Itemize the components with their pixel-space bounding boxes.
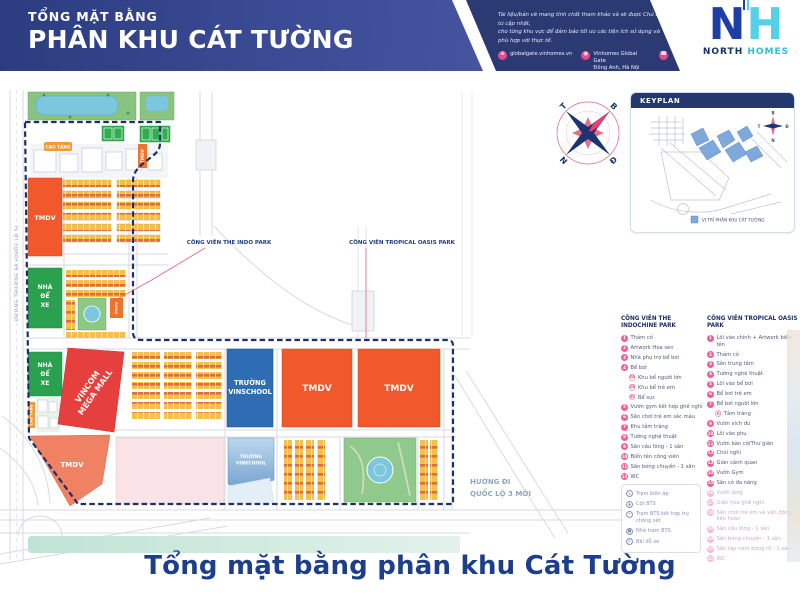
svg-text:TMDV: TMDV bbox=[384, 384, 414, 394]
legend-item: 10 Biển tên công viên bbox=[621, 453, 705, 460]
legend-item-number: 12 bbox=[707, 450, 714, 457]
legend-item: 19 Sân cầu lông - 1 sân bbox=[707, 526, 799, 533]
overpass-structure-east bbox=[352, 291, 374, 331]
legend-item: 1 Lối vào chính + Artwork biển tên bbox=[707, 335, 799, 349]
legend-item-number: 17 bbox=[707, 499, 714, 506]
utility-label: Nhà trạm BTS bbox=[636, 528, 671, 535]
compass-north: B bbox=[608, 101, 619, 112]
legend-item-label: Biển tên công viên bbox=[631, 453, 680, 460]
utility-item: P Bãi đỗ xe bbox=[626, 538, 696, 545]
master-plan-poster: TỔNG MẶT BẰNG PHÂN KHU CÁT TƯỜNG Tài liệ… bbox=[0, 0, 800, 600]
legend-item-label: Giàn hoa ghế nghỉ bbox=[717, 499, 765, 506]
legend-list-indochine: 1 Thảm cỏ 2 Artwork Hoa sen 3 Nhà phụ tr… bbox=[621, 335, 705, 480]
legend-item-label: Chòi nghỉ bbox=[717, 450, 741, 457]
svg-text:VINSCHOOL: VINSCHOOL bbox=[228, 388, 272, 396]
legend-item-number: 1 bbox=[707, 335, 714, 342]
utility-legend-box: ↯ Trạm biến áp ▲ Cột BTS + Trạm BTS kết … bbox=[621, 484, 701, 552]
legend-item: 3 Nhà phụ trợ bể bơi bbox=[621, 354, 705, 361]
legend-item-label: Sân cỏ đa năng bbox=[717, 480, 757, 487]
legend-item-number: 11 bbox=[621, 463, 628, 470]
legend-item-label: Vườn Gym bbox=[717, 470, 744, 477]
legend-item: 9 Sân cầu lông - 1 sân bbox=[621, 443, 705, 450]
legend-item-label: Giàn cảnh quan bbox=[717, 460, 758, 467]
header-info-banner: Tài liệu/bản vẽ mang tính chất tham khảo… bbox=[458, 0, 684, 71]
left-road-label: ĐƯỜNG TRƯỜNG SA (QUỐC LỘ 5) bbox=[12, 225, 20, 321]
legend-item: 8 Tường nghệ thuật bbox=[621, 434, 705, 441]
compass-rose: T B N Đ bbox=[548, 93, 628, 173]
legend-item-number: 1 bbox=[621, 335, 628, 342]
legend-item-label: Khu bể người lớn bbox=[638, 374, 682, 381]
legend-item: 4 Bể bơi bbox=[621, 364, 705, 371]
legend-item-number: 8 bbox=[715, 410, 721, 416]
svg-text:TMDV: TMDV bbox=[114, 302, 119, 315]
legend-item-label: Vườn lắng bbox=[717, 490, 743, 497]
logo-letter-n: N bbox=[709, 5, 746, 45]
svg-text:TMDV: TMDV bbox=[302, 384, 332, 394]
legend-item: 20 Sân bóng chuyền - 1 sân bbox=[707, 536, 799, 543]
location-pin-icon: ◉ bbox=[581, 51, 590, 60]
svg-text:ĐỂ: ĐỂ bbox=[40, 292, 50, 300]
block-vincom-mega-mall: VINCOM MEGA MALL bbox=[58, 348, 124, 432]
legend-item: 17 Giàn hoa ghế nghỉ bbox=[707, 499, 799, 506]
svg-text:NHÀ: NHÀ bbox=[38, 362, 53, 369]
legend-item: 14 Vườn Gym bbox=[707, 470, 799, 477]
legend-item-label: Lối vào phụ bbox=[717, 430, 747, 437]
logo-tick-navy bbox=[743, 0, 746, 10]
legend-item-number: 4 bbox=[621, 364, 628, 371]
header-banner: TỔNG MẶT BẰNG PHÂN KHU CÁT TƯỜNG bbox=[0, 0, 486, 71]
legend-item-label: Sân bóng chuyền - 1 sân bbox=[717, 536, 781, 543]
block-tmdv-small: TMDV bbox=[110, 298, 123, 318]
legend-item-label: Tường nghệ thuật bbox=[717, 371, 763, 378]
block-tmdv-east-1: TMDV bbox=[282, 349, 352, 427]
north-homes-logo: N H NORTH HOMES bbox=[698, 5, 794, 57]
legend-item: 12 WC bbox=[621, 473, 705, 480]
legend-item-number: 4B bbox=[629, 384, 635, 390]
svg-text:CÔNG VIÊN THE INDO PARK: CÔNG VIÊN THE INDO PARK bbox=[187, 238, 272, 246]
phone-icon: ☎ bbox=[659, 51, 668, 60]
keyplan-panel: KEYPLAN B bbox=[630, 92, 795, 233]
legend-item-number: 11 bbox=[707, 440, 714, 447]
legend-item-label: Bể bơi trẻ em bbox=[717, 391, 752, 398]
keyplan-map: B Đ N T VỊ TRÍ PHÂN KHU CÁT TƯỜNG bbox=[631, 108, 794, 230]
legend-item: 5 Lối vào bể bơi bbox=[707, 381, 799, 388]
logo-word-homes: HOMES bbox=[747, 47, 789, 57]
legend-item-label: Sân bóng chuyền - 1 sân bbox=[631, 463, 695, 470]
legend-item-label: WC bbox=[631, 473, 640, 480]
utility-icon: ▲ bbox=[626, 501, 633, 508]
legend-item-label: Tắm tráng bbox=[724, 410, 751, 417]
keyplan-title: KEYPLAN bbox=[631, 93, 794, 108]
utility-item: ■ Nhà trạm BTS bbox=[626, 528, 696, 535]
block-tmdv-southwest: TMDV bbox=[30, 435, 110, 506]
utility-label: Trạm biến áp bbox=[636, 490, 669, 497]
block-tmdv-east-2: TMDV bbox=[358, 349, 440, 427]
address-line-1: Vinhomes Global Gate bbox=[593, 51, 637, 64]
shophouse-rows-upper bbox=[63, 180, 160, 242]
legend-item-number: 18 bbox=[707, 509, 714, 516]
legend-item-number: 8 bbox=[621, 434, 628, 441]
legend-item-number: 9 bbox=[621, 443, 628, 450]
utility-icon: ■ bbox=[626, 528, 633, 535]
high-rise-cluster-south: CAO TẦNG bbox=[28, 398, 60, 432]
legend-item: 13 Giàn cảnh quan bbox=[707, 460, 799, 467]
svg-text:Đ: Đ bbox=[785, 124, 789, 129]
compass-south: N bbox=[558, 155, 569, 166]
keyplan-compass: B Đ N T bbox=[758, 111, 790, 144]
legend-item-label: Tường nghệ thuật bbox=[631, 434, 677, 441]
page-title: PHÂN KHU CÁT TƯỜNG bbox=[28, 25, 486, 54]
legend-item-number: 10 bbox=[707, 430, 714, 437]
svg-text:T: T bbox=[758, 124, 761, 129]
logo-letter-h: H bbox=[747, 5, 784, 45]
legend-item: 7 Khu tắm tráng bbox=[621, 424, 705, 431]
legend-item-number: 2 bbox=[707, 351, 714, 358]
utility-icon: ↯ bbox=[626, 490, 633, 497]
svg-text:XE: XE bbox=[41, 380, 50, 387]
utility-icon: P bbox=[626, 538, 633, 545]
legend-item: 4 Tường nghệ thuật bbox=[707, 371, 799, 378]
keyplan-highlight-parcels bbox=[691, 126, 763, 162]
legend-item-label: Vườn bàn cờ/Thư giãn bbox=[717, 440, 774, 447]
legend-item-number: 4 bbox=[707, 371, 714, 378]
legend-item: 5 Vườn gym kết hợp ghế nghỉ bbox=[621, 404, 705, 411]
legend-item-label: Thảm cỏ bbox=[717, 351, 739, 358]
legend-item: 15 Sân cỏ đa năng bbox=[707, 480, 799, 487]
legend-item-number: 20 bbox=[707, 536, 714, 543]
legend-item-number: 5 bbox=[621, 404, 628, 411]
svg-text:TRƯỜNG: TRƯỜNG bbox=[234, 378, 266, 387]
utility-label: Bãi đỗ xe bbox=[636, 538, 659, 545]
legend-item-number: 9 bbox=[707, 420, 714, 427]
logo-tick-cyan bbox=[747, 0, 750, 10]
block-vinschool-2: TRƯỜNG VINSCHOOL bbox=[228, 438, 274, 504]
svg-text:ĐƯỜNG TRƯỜNG SA (QUỐC LỘ 5): ĐƯỜNG TRƯỜNG SA (QUỐC LỘ 5) bbox=[12, 225, 20, 321]
legend-item-label: Artwork Hoa sen bbox=[631, 345, 674, 352]
contact-address: ◉ Vinhomes Global Gate Đông Anh, Hà Nội bbox=[581, 51, 650, 72]
legend-item-label: Khu tắm tráng bbox=[631, 424, 668, 431]
globe-icon: ⊕ bbox=[498, 51, 507, 60]
svg-text:NHÀ: NHÀ bbox=[38, 284, 53, 291]
svg-text:HƯỚNG ĐI: HƯỚNG ĐI bbox=[470, 477, 510, 486]
legend-item: 2 Thảm cỏ bbox=[707, 351, 799, 358]
address-line-2: Đông Anh, Hà Nội bbox=[593, 65, 639, 71]
utility-icon: + bbox=[626, 511, 633, 518]
legend-item-number: 14 bbox=[707, 470, 714, 477]
legend-item-number: 2 bbox=[621, 345, 628, 352]
utility-item: ↯ Trạm biến áp bbox=[626, 490, 696, 497]
legend-item-label: Bể sục bbox=[638, 394, 655, 401]
block-tmdv-west: TMDV bbox=[28, 178, 62, 256]
legend-item-label: Sân chơi trẻ em sắc màu bbox=[631, 414, 696, 421]
legend-item: 4A Khu bể người lớn bbox=[629, 374, 705, 381]
legend-item: 1 Thảm cỏ bbox=[621, 335, 705, 342]
legend-item-number: 4C bbox=[629, 394, 635, 400]
legend-item: 4B Khu bể trẻ em bbox=[629, 384, 705, 391]
legend-item: 3 Sân trung tâm bbox=[707, 361, 799, 368]
keyplan-legend: VỊ TRÍ PHÂN KHU CÁT TƯỜNG bbox=[691, 216, 764, 223]
legend-item-label: Vườn gym kết hợp ghế nghỉ bbox=[631, 404, 703, 411]
legend-column-indochine: CÔNG VIÊN THE INDOCHINE PARK 1 Thảm cỏ 2… bbox=[621, 316, 705, 553]
legend-item: 16 Vườn lắng bbox=[707, 490, 799, 497]
utility-item: + Trạm BTS kết hợp trụ chống sét bbox=[626, 511, 696, 525]
legend-item-label: Bể bơi bbox=[631, 364, 647, 371]
legend-item-label: Sân cầu lông - 1 sân bbox=[717, 526, 770, 533]
svg-text:TMDV: TMDV bbox=[61, 461, 85, 469]
utility-label: Cột BTS bbox=[636, 501, 656, 508]
svg-text:XE: XE bbox=[41, 302, 50, 309]
map-caption: Tổng mặt bằng phân khu Cát Tường bbox=[90, 551, 730, 581]
header-subtitle: TỔNG MẶT BẰNG bbox=[28, 9, 486, 24]
svg-text:N: N bbox=[771, 138, 774, 143]
legend-item-number: 13 bbox=[707, 460, 714, 467]
legend-item-number: 16 bbox=[707, 490, 714, 497]
disclaimer-line-1: Tài liệu/bản vẽ mang tính chất tham khảo… bbox=[498, 11, 668, 28]
svg-text:ĐỂ: ĐỂ bbox=[40, 370, 50, 378]
callout-indo-park: CÔNG VIÊN THE INDO PARK bbox=[112, 238, 272, 302]
svg-text:B: B bbox=[771, 111, 774, 116]
legend-item-number: 6 bbox=[621, 414, 628, 421]
indochine-park bbox=[78, 298, 106, 330]
legend-item-label: Sân cầu lông - 1 sân bbox=[631, 443, 684, 450]
legend-item: 2 Artwork Hoa sen bbox=[621, 345, 705, 352]
legend-item: 4C Bể sục bbox=[629, 394, 705, 401]
legend-title-tropical: CÔNG VIÊN TROPICAL OASIS PARK bbox=[707, 316, 799, 330]
legend-item-number: 3 bbox=[707, 361, 714, 368]
svg-text:VINSCHOOL: VINSCHOOL bbox=[236, 461, 266, 467]
svg-text:CÔNG VIÊN TROPICAL OASIS PARK: CÔNG VIÊN TROPICAL OASIS PARK bbox=[349, 238, 455, 246]
block-parking-1: NHÀ ĐỂ XE bbox=[28, 268, 62, 328]
pink-zone bbox=[116, 438, 224, 504]
direction-label: HƯỚNG ĐI QUỐC LỘ 3 MỚI bbox=[470, 477, 531, 498]
utility-label: Trạm BTS kết hợp trụ chống sét bbox=[636, 511, 696, 525]
contact-website: ⊕ globalgate.vinhomes.vn bbox=[498, 51, 572, 60]
legend-title-indochine: CÔNG VIÊN THE INDOCHINE PARK bbox=[621, 316, 705, 330]
contact-phone: ☎ bbox=[659, 51, 668, 60]
legend-item-label: Vườn xích đu bbox=[717, 420, 751, 427]
legend-column-tropical: CÔNG VIÊN TROPICAL OASIS PARK 1 Lối vào … bbox=[707, 316, 799, 565]
tmdv-vertical-label: TMDV bbox=[140, 148, 145, 162]
legend-item-number: 10 bbox=[621, 453, 628, 460]
legend-item: 6 Bể bơi trẻ em bbox=[707, 391, 799, 398]
legend-item-label: Lối vào bể bơi bbox=[717, 381, 753, 388]
legend-item: 11 Sân bóng chuyền - 1 sân bbox=[621, 463, 705, 470]
legend-item-number: 19 bbox=[707, 526, 714, 533]
svg-text:TRƯỜNG: TRƯỜNG bbox=[240, 453, 262, 460]
legend-item-number: 7 bbox=[621, 424, 628, 431]
photo-strip bbox=[787, 330, 800, 562]
overpass-structure-north bbox=[196, 140, 216, 170]
utility-item: ▲ Cột BTS bbox=[626, 501, 696, 508]
compass-east: Đ bbox=[608, 155, 619, 166]
shophouse-rows-lower bbox=[132, 350, 222, 422]
legend-item-number: 12 bbox=[621, 473, 628, 480]
legend-list-tropical: 1 Lối vào chính + Artwork biển tên 2 Thả… bbox=[707, 335, 799, 563]
svg-text:QUỐC LỘ 3 MỚI: QUỐC LỘ 3 MỚI bbox=[470, 488, 531, 498]
legend-item-number: 3 bbox=[621, 354, 628, 361]
north-park-square bbox=[140, 92, 174, 120]
legend-item-label: Sân trung tâm bbox=[717, 361, 754, 368]
legend-item: 18 Sân chơi trẻ em và vận động liên hoàn bbox=[707, 509, 799, 523]
legend-item: 12 Chòi nghỉ bbox=[707, 450, 799, 457]
legend-item: 9 Vườn xích đu bbox=[707, 420, 799, 427]
block-parking-2: NHÀ ĐỂ XE bbox=[28, 352, 62, 396]
block-vinschool: TRƯỜNG VINSCHOOL bbox=[227, 349, 273, 427]
legend-item-label: Bể bơi người lớn bbox=[717, 401, 759, 408]
tropical-oasis-park bbox=[344, 438, 416, 502]
disclaimer-line-2: cho từng khu vực để đảm bảo tối ưu các t… bbox=[498, 28, 668, 45]
svg-text:VỊ TRÍ PHÂN KHU CÁT TƯỜNG: VỊ TRÍ PHÂN KHU CÁT TƯỜNG bbox=[702, 218, 764, 223]
legend-item-label: Khu bể trẻ em bbox=[638, 384, 675, 391]
legend-item: 11 Vườn bàn cờ/Thư giãn bbox=[707, 440, 799, 447]
legend-item-number: 15 bbox=[707, 480, 714, 487]
north-park-strip bbox=[28, 92, 136, 120]
svg-text:TMDV: TMDV bbox=[34, 214, 55, 222]
logo-word-north: NORTH bbox=[703, 47, 743, 57]
legend-item-number: 6 bbox=[707, 391, 714, 398]
legend-item-number: 4A bbox=[629, 374, 635, 380]
legend-item-number: 7 bbox=[707, 401, 714, 408]
legend-item-label: Thảm cỏ bbox=[631, 335, 653, 342]
legend-item-number: 5 bbox=[707, 381, 714, 388]
legend-item: 10 Lối vào phụ bbox=[707, 430, 799, 437]
legend-item: 6 Sân chơi trẻ em sắc màu bbox=[621, 414, 705, 421]
legend-item-label: Nhà phụ trợ bể bơi bbox=[631, 354, 680, 361]
site-plan-map: CAO TẦNG TMDV TMDV NHÀ ĐỂ XE bbox=[0, 86, 628, 564]
legend-item: 7 Bể bơi người lớn bbox=[707, 401, 799, 408]
